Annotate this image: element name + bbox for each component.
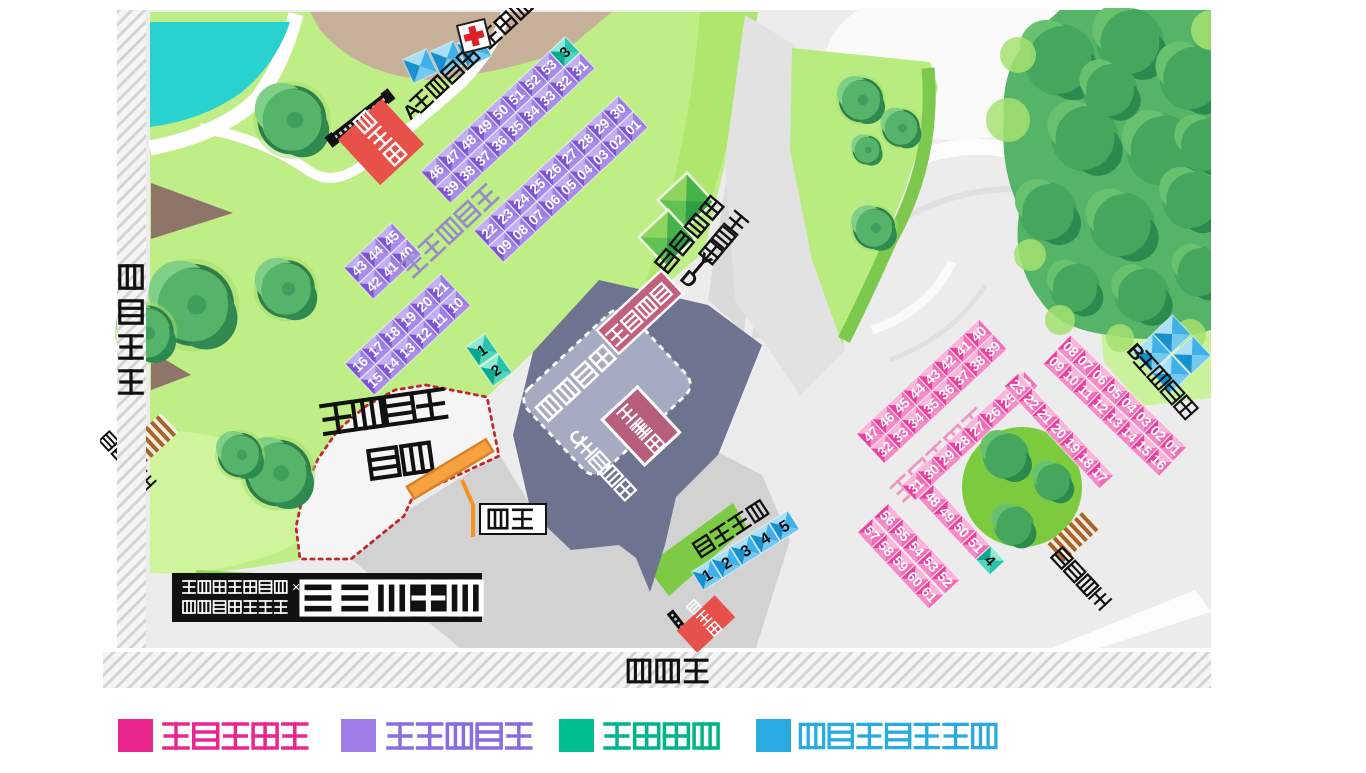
- svg-text:×: ×: [292, 580, 301, 596]
